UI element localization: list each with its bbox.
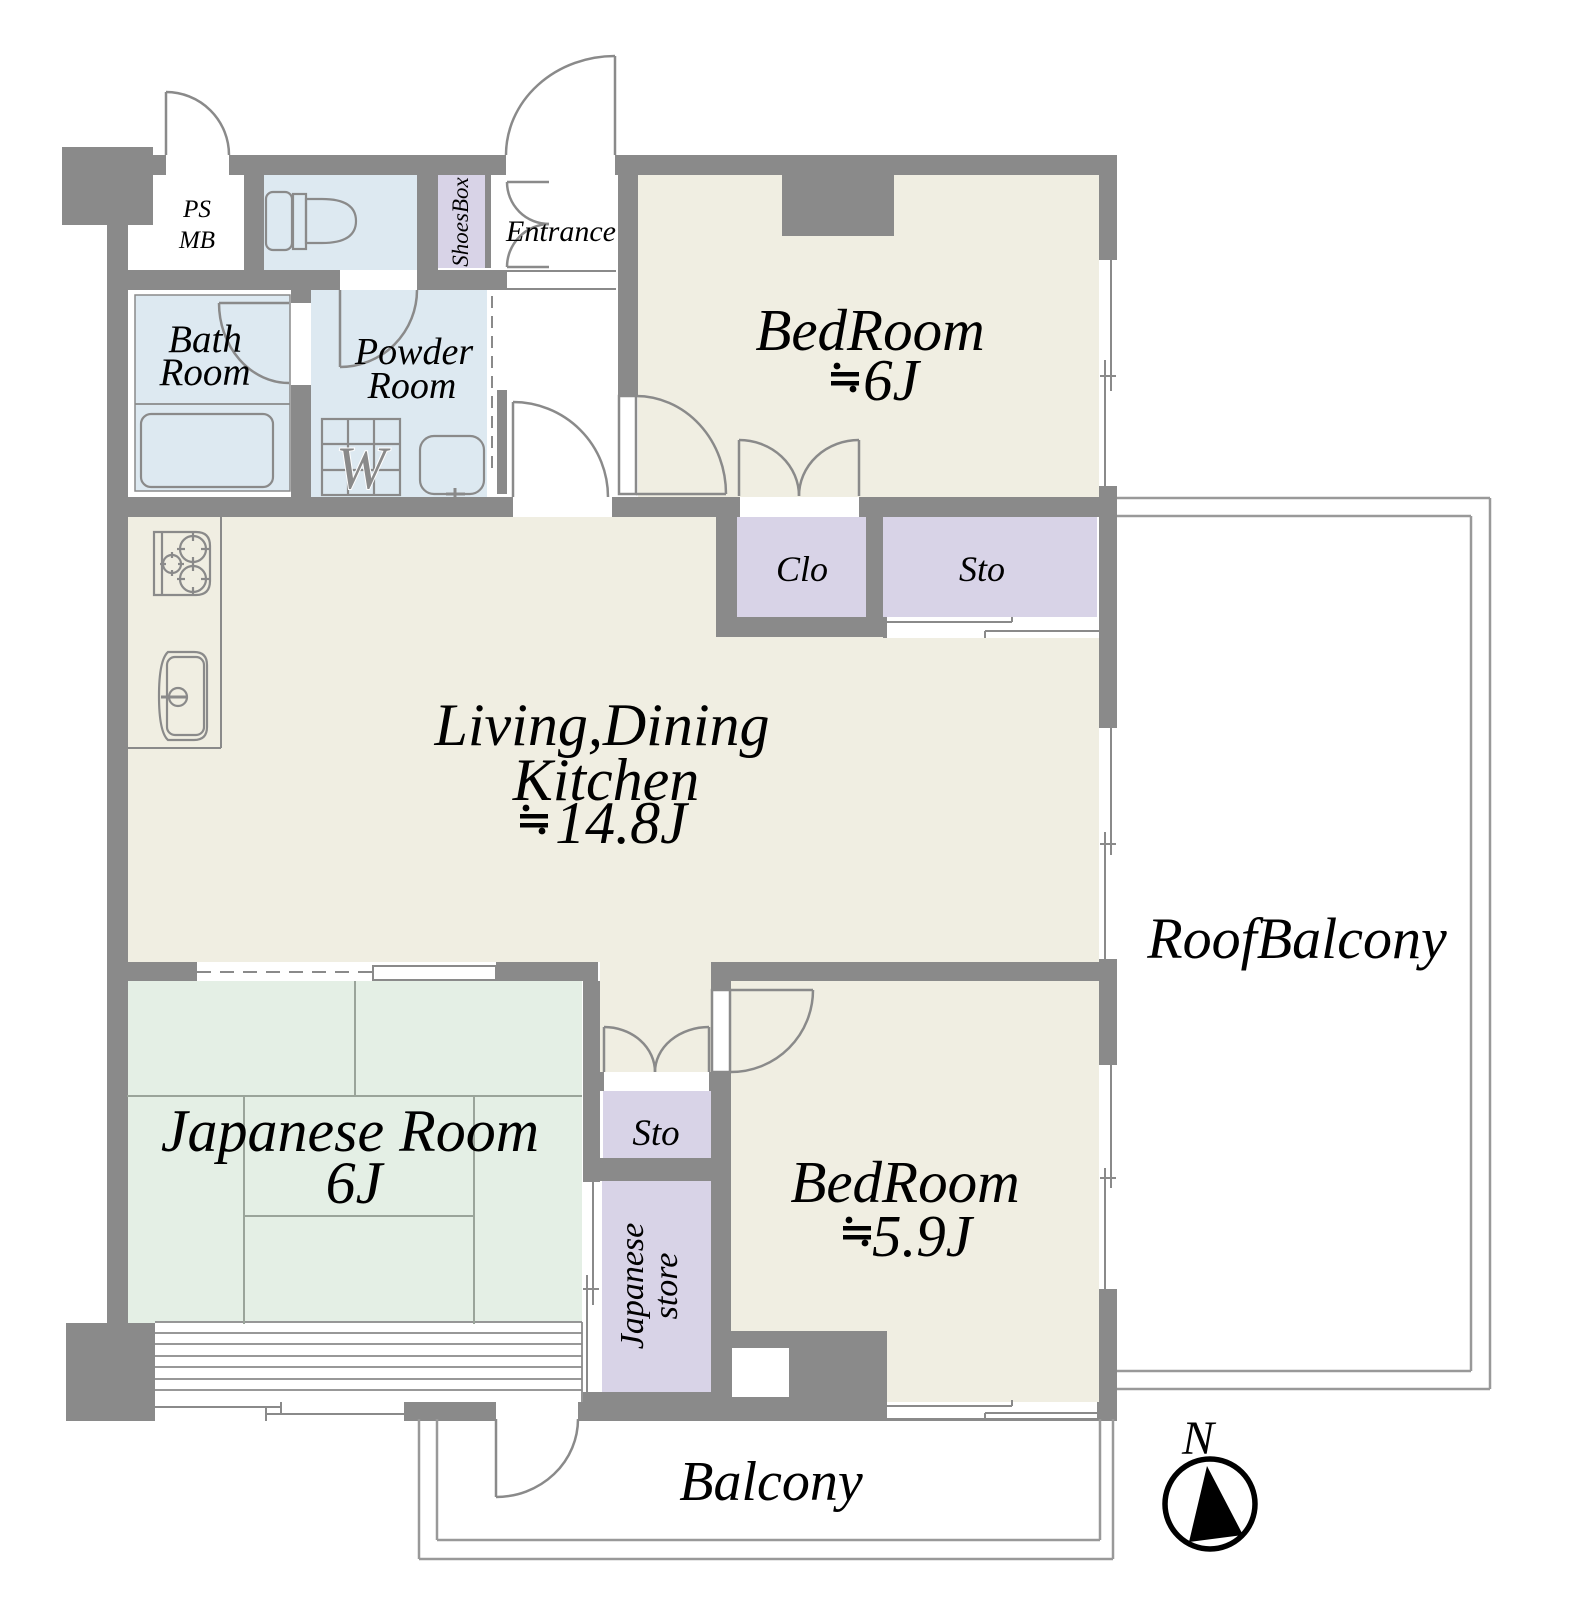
svg-text:Room: Room xyxy=(159,351,251,394)
svg-text:14.8J: 14.8J xyxy=(555,790,689,856)
svg-text:W: W xyxy=(336,435,391,501)
svg-text:Balcony: Balcony xyxy=(679,1451,863,1513)
svg-text:Sto: Sto xyxy=(959,549,1005,589)
svg-text:ShoesBox: ShoesBox xyxy=(448,177,473,267)
svg-text:store: store xyxy=(648,1253,685,1320)
svg-text:6J: 6J xyxy=(326,1150,385,1216)
svg-text:Entrance: Entrance xyxy=(505,215,616,248)
svg-text:6J: 6J xyxy=(863,347,922,413)
svg-text:Sto: Sto xyxy=(632,1113,679,1154)
svg-text:RoofBalcony: RoofBalcony xyxy=(1146,906,1447,971)
svg-text:Japanese: Japanese xyxy=(614,1223,651,1350)
svg-text:5.9J: 5.9J xyxy=(872,1203,975,1269)
svg-text:Room: Room xyxy=(367,365,457,407)
svg-text:PS: PS xyxy=(182,196,211,223)
svg-text:MB: MB xyxy=(178,227,215,254)
svg-text:Clo: Clo xyxy=(776,549,828,589)
